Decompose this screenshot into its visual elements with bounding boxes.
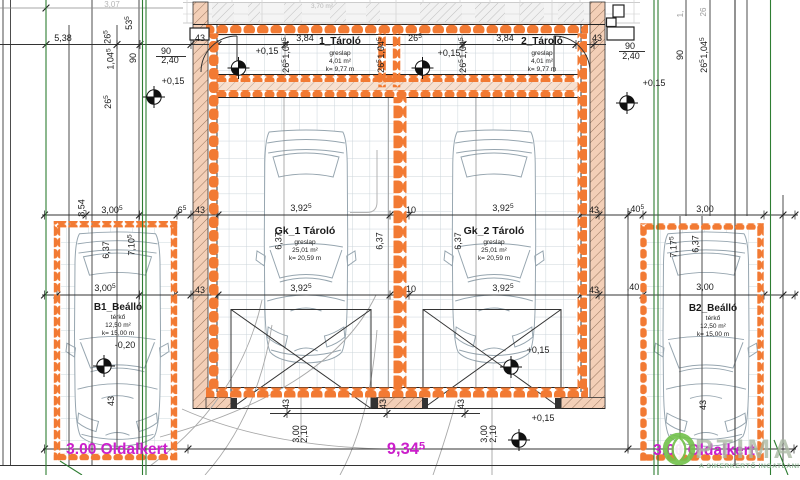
svg-text:6,37: 6,37 [101, 241, 111, 259]
svg-text:térkő: térkő [111, 314, 126, 321]
svg-text:6,37: 6,37 [453, 232, 463, 250]
svg-text:Gk_2 Tároló: Gk_2 Tároló [464, 225, 525, 237]
svg-text:k= 15,00 m: k= 15,00 m [102, 330, 134, 337]
svg-text:3,84: 3,84 [496, 33, 514, 43]
svg-text:3,00: 3,00 [696, 282, 714, 292]
svg-text:43: 43 [281, 399, 291, 409]
svg-text:greslap: greslap [294, 239, 316, 246]
svg-text:PTIMA: PTIMA [695, 434, 797, 464]
svg-text:1,: 1, [676, 11, 685, 18]
svg-text:A SIKERKERTŐ INGATLANIRODA: A SIKERKERTŐ INGATLANIRODA [699, 461, 800, 470]
svg-text:25,01 m²: 25,01 m² [481, 247, 507, 254]
svg-text:3,84: 3,84 [296, 33, 314, 43]
svg-text:k= 20,59 m: k= 20,59 m [478, 255, 510, 262]
svg-text:43: 43 [456, 399, 466, 409]
svg-text:4,01 m²: 4,01 m² [531, 58, 554, 65]
svg-text:,40: ,40 [627, 282, 640, 292]
svg-text:43: 43 [106, 396, 116, 406]
svg-text:+0,15: +0,15 [527, 345, 550, 355]
svg-text:5,38: 5,38 [54, 33, 72, 43]
svg-text:térkő: térkő [706, 315, 721, 322]
svg-text:10: 10 [406, 205, 416, 215]
svg-text:3,00: 3,00 [696, 204, 714, 214]
svg-text:B2_Beálló: B2_Beálló [689, 303, 737, 314]
svg-text:B1_Beálló: B1_Beálló [94, 302, 142, 313]
svg-text:43: 43 [589, 285, 599, 295]
svg-text:Gk_1 Tároló: Gk_1 Tároló [275, 225, 336, 237]
svg-text:2,10: 2,10 [488, 425, 498, 443]
svg-text:2,40: 2,40 [622, 51, 640, 61]
svg-text:4,01 m²: 4,01 m² [329, 58, 352, 65]
svg-text:6,37: 6,37 [691, 235, 701, 253]
svg-text:+0,15: +0,15 [438, 48, 461, 58]
svg-text:+0,15: +0,15 [256, 46, 279, 56]
svg-text:k= 9,77 m: k= 9,77 m [528, 66, 557, 73]
svg-text:25,01 m²: 25,01 m² [292, 247, 318, 254]
svg-text:3,70 m²: 3,70 m² [311, 3, 334, 10]
svg-text:greslap: greslap [531, 50, 553, 57]
svg-text:k= 20,59 m: k= 20,59 m [289, 255, 321, 262]
svg-text:43: 43 [592, 33, 602, 43]
svg-text:+0,15: +0,15 [532, 413, 555, 423]
svg-text:43: 43 [589, 205, 599, 215]
svg-text:k= 9,77 m: k= 9,77 m [326, 66, 355, 73]
svg-text:6,37: 6,37 [274, 232, 284, 250]
svg-text:10: 10 [406, 284, 416, 294]
svg-text:43: 43 [698, 400, 708, 410]
svg-text:1_Tároló: 1_Tároló [319, 36, 361, 47]
svg-text:8,54: 8,54 [77, 199, 87, 217]
svg-text:6,37: 6,37 [375, 232, 385, 250]
svg-text:90: 90 [625, 41, 635, 51]
svg-text:+0,15: +0,15 [643, 78, 666, 88]
svg-text:greslap: greslap [329, 50, 351, 57]
svg-text:26: 26 [699, 7, 708, 16]
svg-text:-0,20: -0,20 [115, 340, 136, 350]
svg-text:90: 90 [128, 53, 138, 63]
svg-text:+0,15: +0,15 [162, 76, 185, 86]
svg-text:12,50 m²: 12,50 m² [700, 323, 726, 330]
svg-text:43: 43 [195, 285, 205, 295]
svg-text:12,50 m²: 12,50 m² [105, 322, 131, 329]
svg-text:3.00 Oldalkert: 3.00 Oldalkert [66, 441, 168, 458]
svg-text:2,10: 2,10 [299, 425, 309, 443]
svg-text:greslap: greslap [483, 239, 505, 246]
svg-text:43: 43 [195, 33, 205, 43]
svg-text:90: 90 [675, 50, 685, 60]
svg-text:43: 43 [195, 205, 205, 215]
svg-text:k= 15,00 m: k= 15,00 m [697, 331, 729, 338]
svg-text:2_Tároló: 2_Tároló [521, 36, 563, 47]
svg-text:43: 43 [378, 399, 388, 409]
